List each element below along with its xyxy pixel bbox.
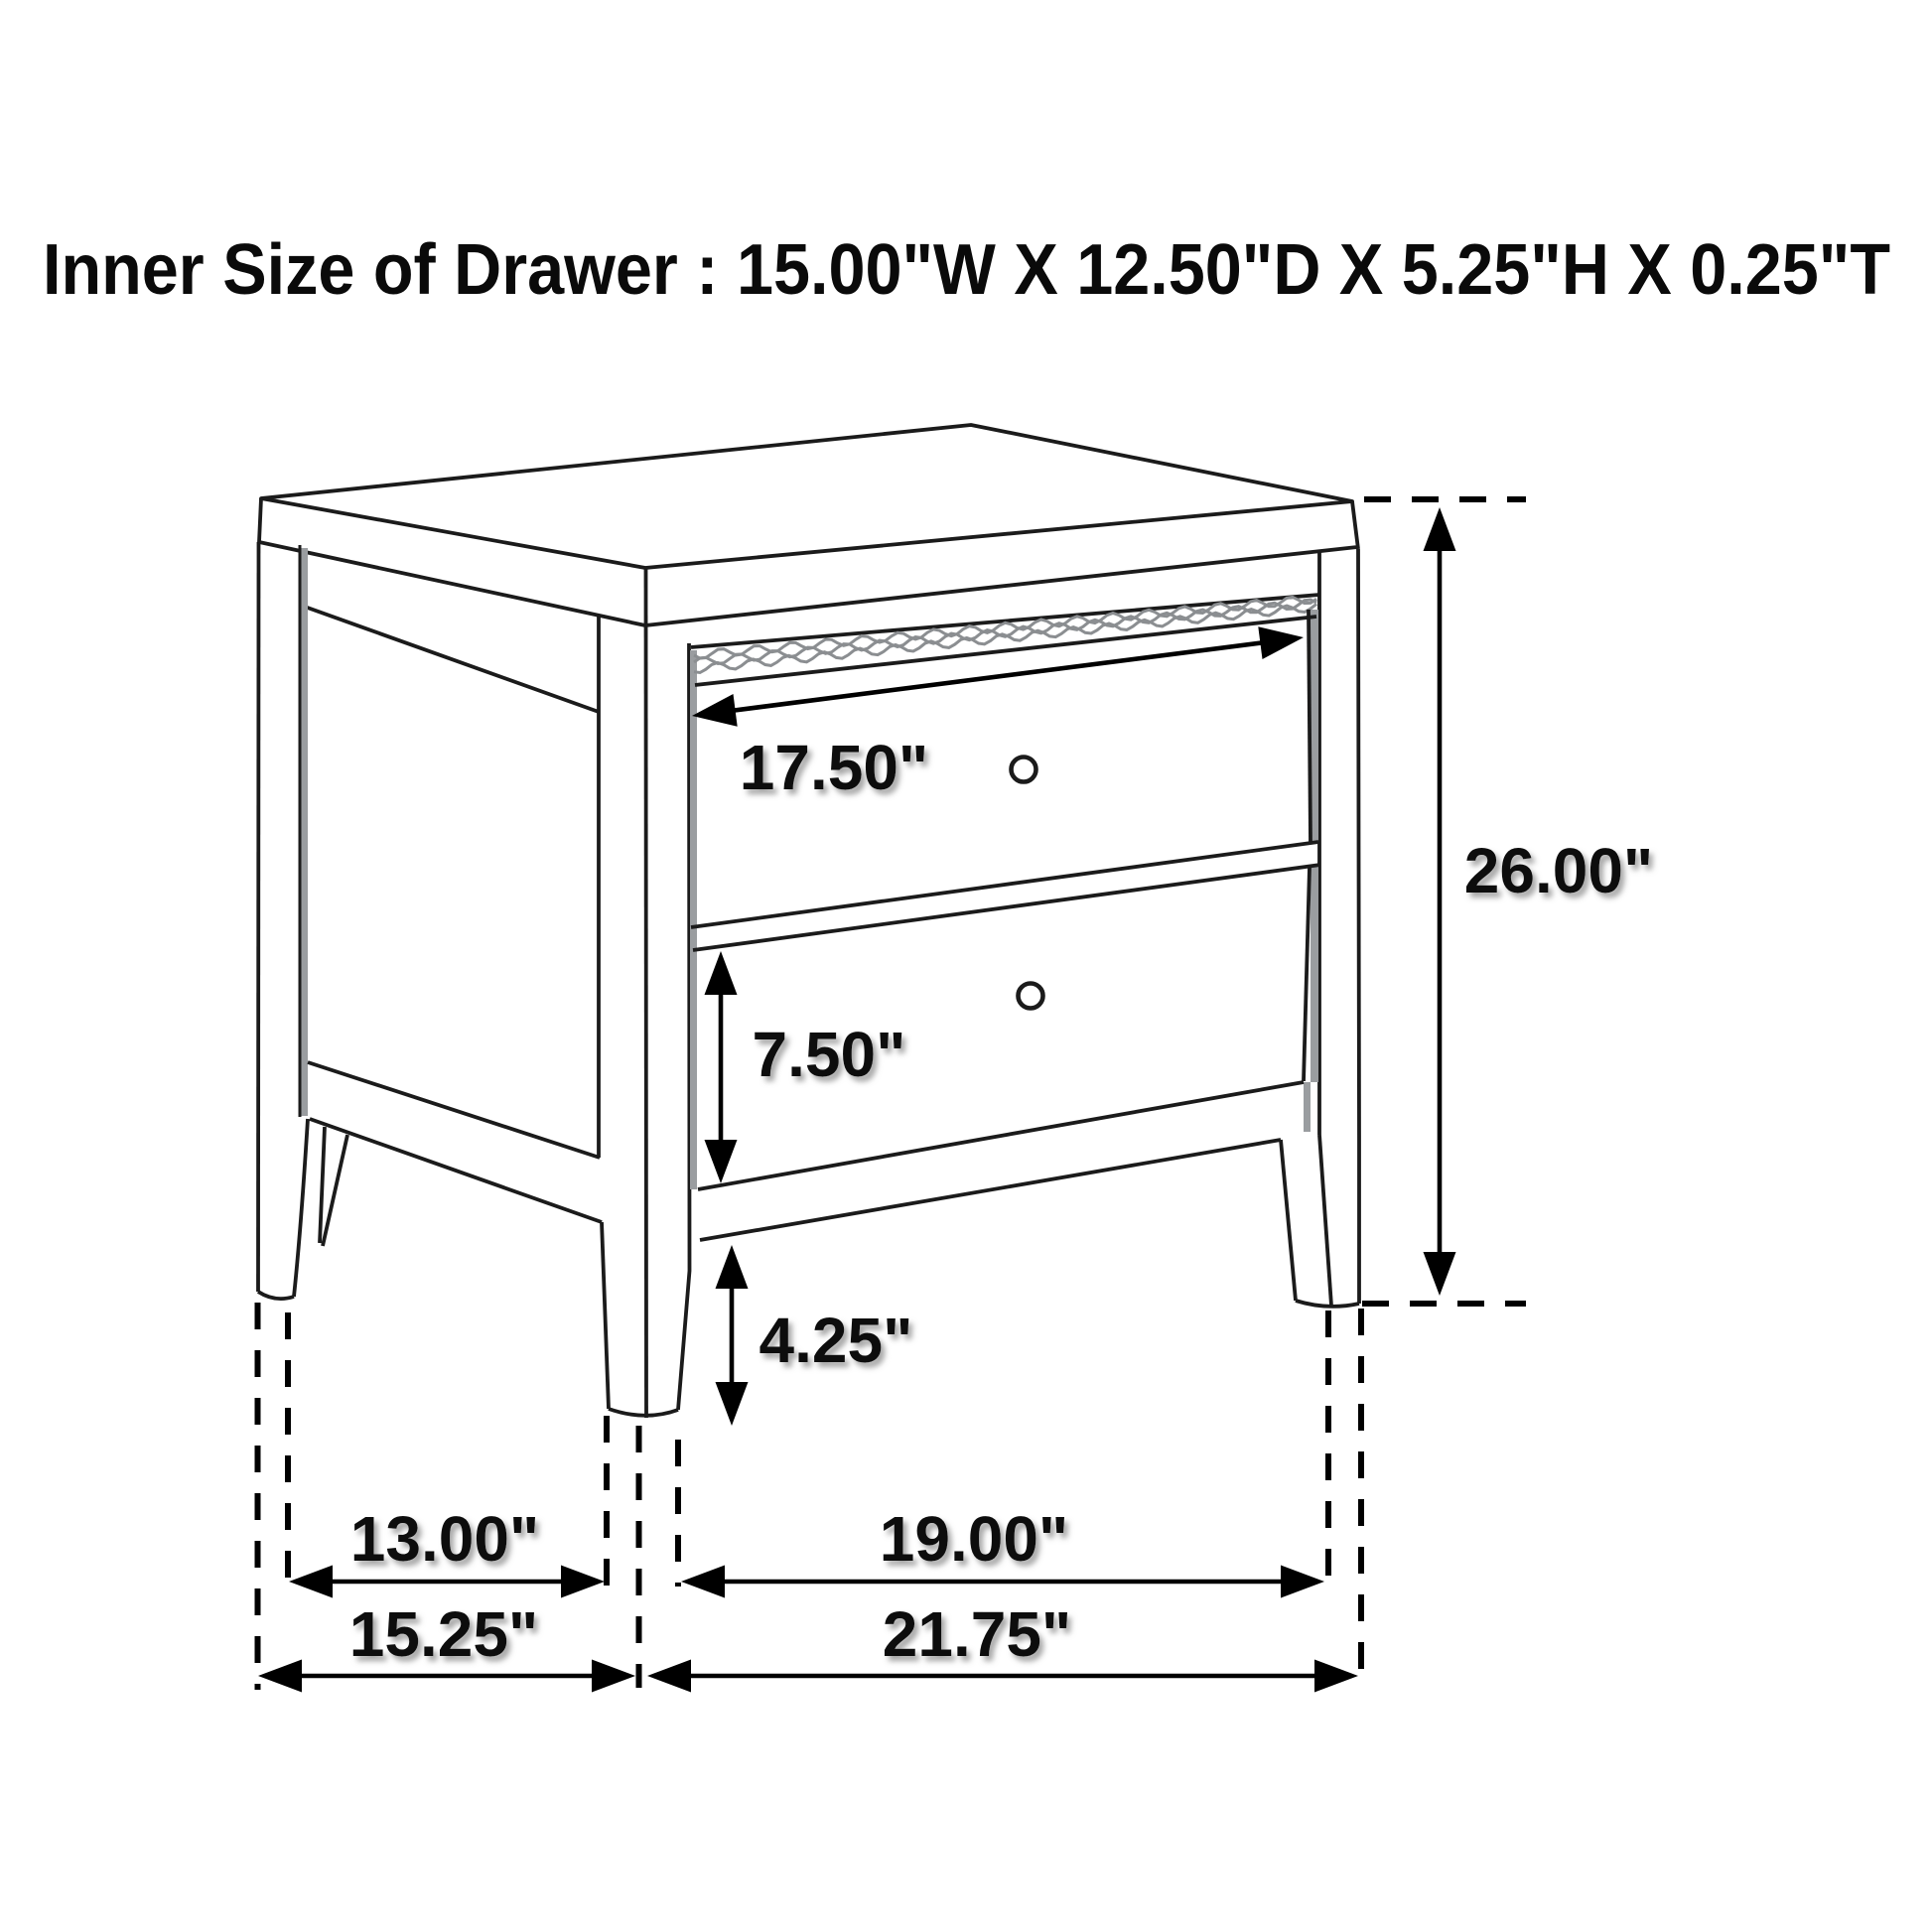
svg-text:17.50": 17.50" [740, 732, 929, 803]
svg-text:15.25": 15.25" [349, 1598, 539, 1670]
svg-text:19.00": 19.00" [880, 1503, 1069, 1575]
svg-text:4.25": 4.25" [759, 1305, 913, 1376]
svg-text:26.00": 26.00" [1464, 835, 1654, 906]
svg-text:13.00": 13.00" [350, 1503, 540, 1575]
svg-text:7.50": 7.50" [753, 1019, 906, 1090]
svg-text:21.75": 21.75" [883, 1598, 1072, 1670]
svg-text:Inner Size of Drawer : 15.00"W: Inner Size of Drawer : 15.00"W X 12.50"D… [43, 230, 1890, 310]
